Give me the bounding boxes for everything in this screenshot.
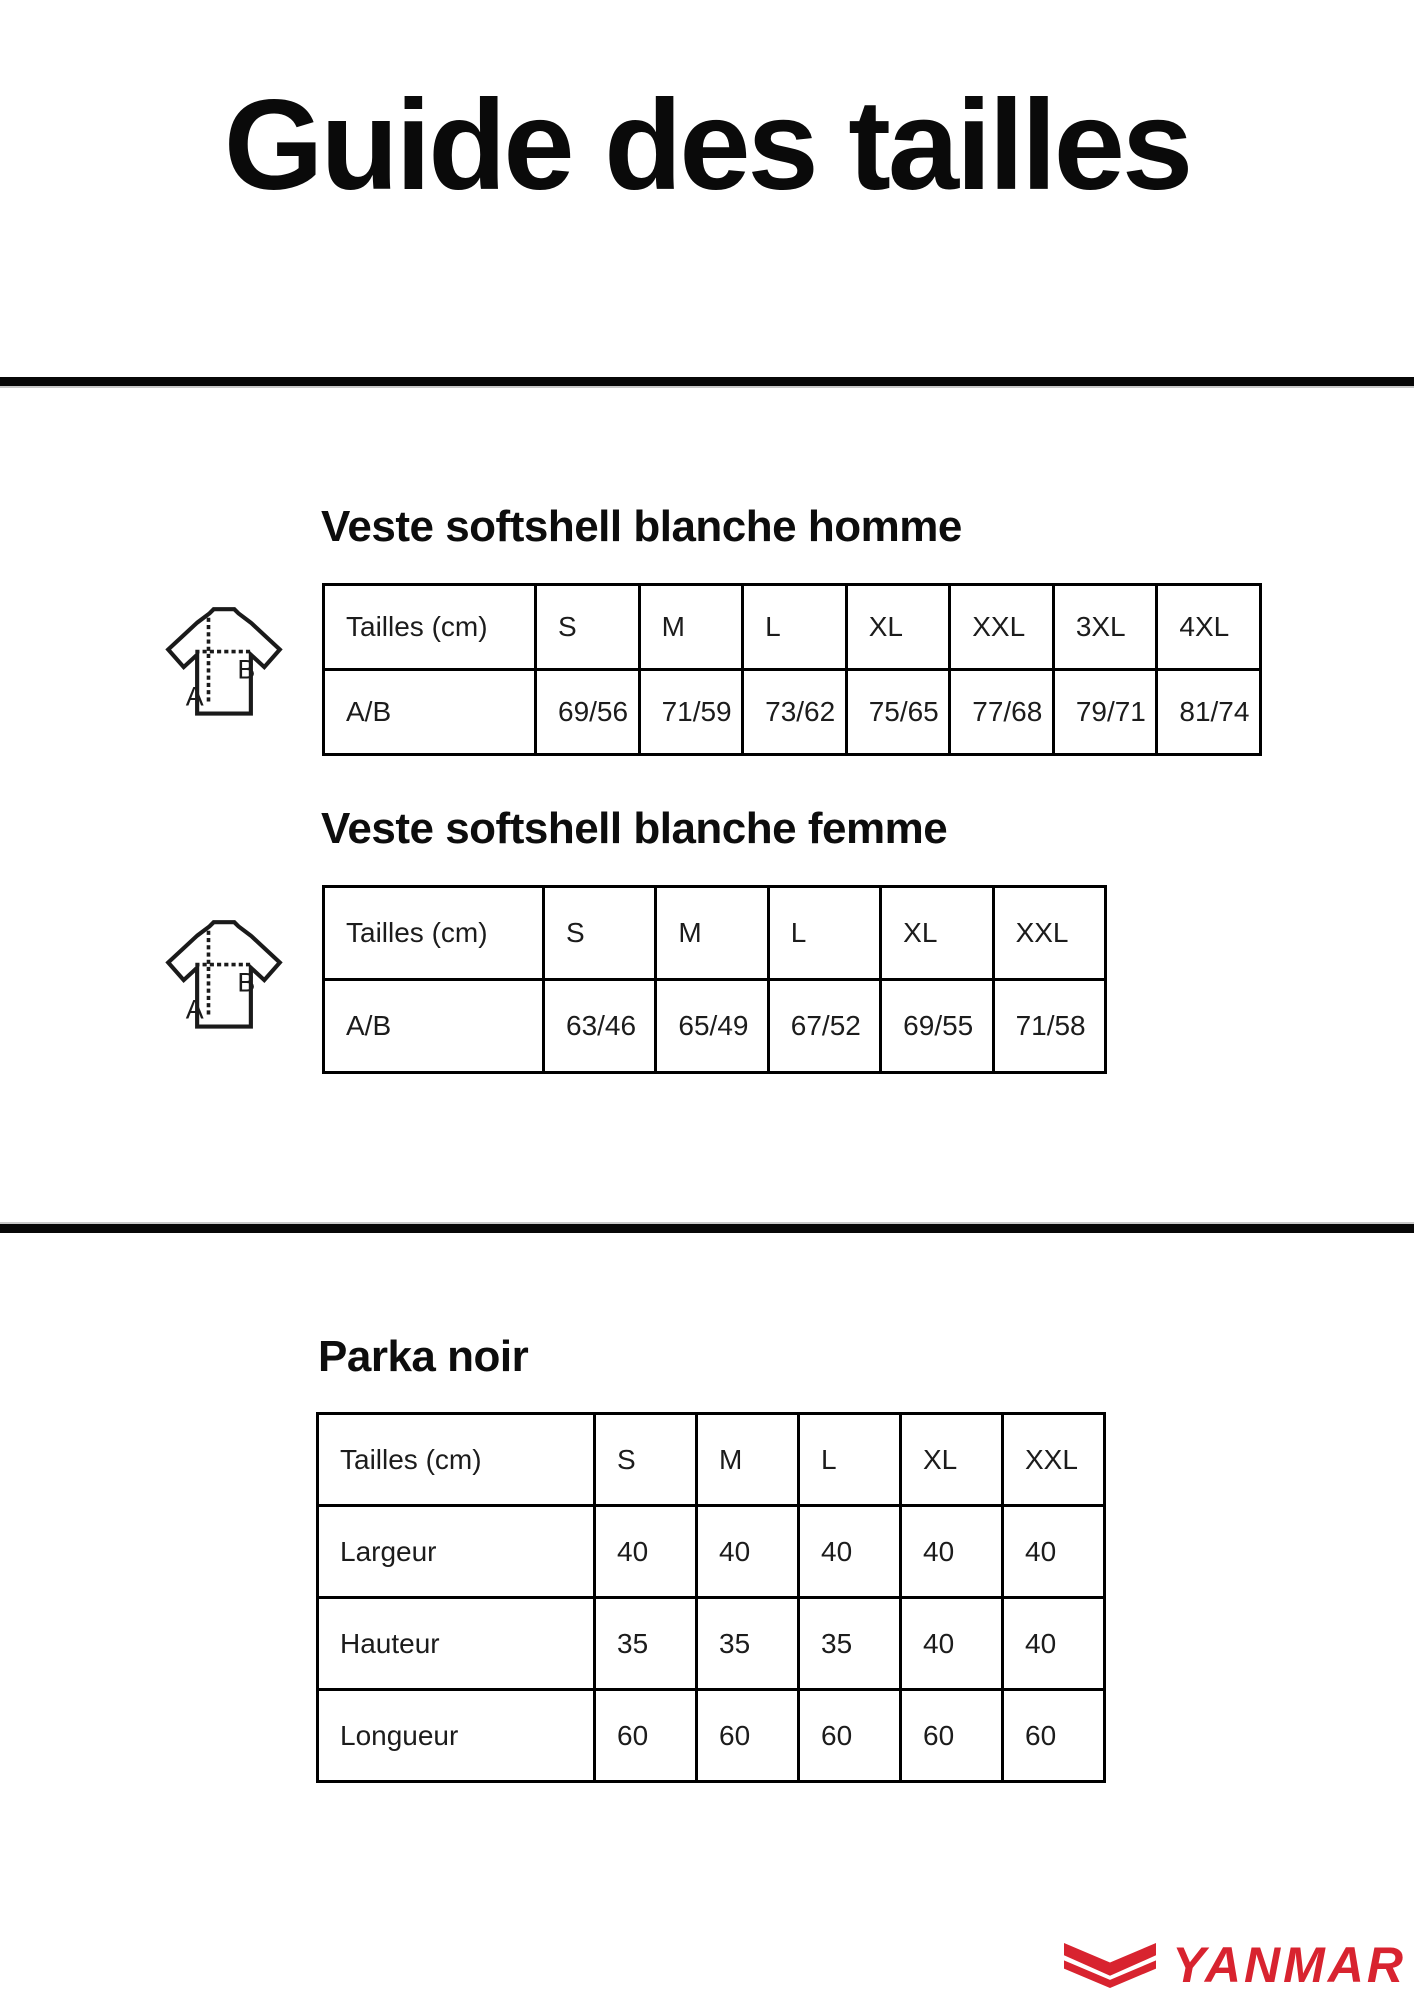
column-header-cell: S <box>544 887 656 980</box>
tshirt-measure-icon: A B <box>162 919 286 1040</box>
value-cell: 79/71 <box>1053 670 1157 755</box>
value-cell: A/B <box>324 980 544 1073</box>
table-row: A/B69/5671/5973/6275/6577/6879/7181/74 <box>324 670 1261 755</box>
width-label: B <box>237 967 255 997</box>
column-header-cell: Tailles (cm) <box>324 887 544 980</box>
column-header-cell: XL <box>846 585 950 670</box>
value-cell: Longueur <box>318 1690 595 1782</box>
table-row: Tailles (cm)SMLXLXXL <box>318 1414 1105 1506</box>
value-cell: 40 <box>1003 1598 1105 1690</box>
value-cell: A/B <box>324 670 536 755</box>
yanmar-wordmark: YANMAR <box>1172 1940 1406 1990</box>
value-cell: 60 <box>901 1690 1003 1782</box>
column-header-cell: L <box>743 585 847 670</box>
column-header-cell: M <box>639 585 743 670</box>
value-cell: 75/65 <box>846 670 950 755</box>
table-row: A/B63/4665/4967/5269/5571/58 <box>324 980 1106 1073</box>
column-header-cell: L <box>768 887 880 980</box>
column-header-cell: XXL <box>950 585 1054 670</box>
section-divider-top <box>0 377 1414 388</box>
column-header-cell: M <box>656 887 768 980</box>
yanmar-logo: YANMAR <box>1064 1940 1406 1990</box>
value-cell: 40 <box>901 1598 1003 1690</box>
column-header-cell: XXL <box>1003 1414 1105 1506</box>
value-cell: 73/62 <box>743 670 847 755</box>
column-header-cell: XXL <box>993 887 1105 980</box>
value-cell: 40 <box>799 1506 901 1598</box>
value-cell: 63/46 <box>544 980 656 1073</box>
column-header-cell: 3XL <box>1053 585 1157 670</box>
value-cell: 81/74 <box>1157 670 1261 755</box>
size-table-femme: Tailles (cm)SMLXLXXLA/B63/4665/4967/5269… <box>322 885 1107 1074</box>
value-cell: 60 <box>595 1690 697 1782</box>
size-table-parka: Tailles (cm)SMLXLXXLLargeur4040404040Hau… <box>316 1412 1106 1783</box>
column-header-cell: L <box>799 1414 901 1506</box>
value-cell: 60 <box>799 1690 901 1782</box>
yanmar-double-chevron-icon <box>1064 1942 1156 1988</box>
table-row: Largeur4040404040 <box>318 1506 1105 1598</box>
table-row: Tailles (cm)SMLXLXXL3XL4XL <box>324 585 1261 670</box>
value-cell: 40 <box>901 1506 1003 1598</box>
value-cell: 60 <box>1003 1690 1105 1782</box>
column-header-cell: S <box>595 1414 697 1506</box>
size-guide-page: Guide des tailles Veste softshell blanch… <box>0 0 1414 2000</box>
value-cell: 77/68 <box>950 670 1054 755</box>
value-cell: 35 <box>697 1598 799 1690</box>
width-label: B <box>237 654 255 684</box>
page-title: Guide des tailles <box>0 76 1414 217</box>
column-header-cell: Tailles (cm) <box>318 1414 595 1506</box>
section-heading-homme: Veste softshell blanche homme <box>321 502 962 552</box>
value-cell: Hauteur <box>318 1598 595 1690</box>
section-heading-parka: Parka noir <box>318 1332 528 1382</box>
table-row: Longueur6060606060 <box>318 1690 1105 1782</box>
size-table-homme: Tailles (cm)SMLXLXXL3XL4XLA/B69/5671/597… <box>322 583 1262 756</box>
section-divider-bottom <box>0 1222 1414 1233</box>
column-header-cell: M <box>697 1414 799 1506</box>
value-cell: 60 <box>697 1690 799 1782</box>
tshirt-measure-icon: A B <box>162 606 286 727</box>
value-cell: 35 <box>595 1598 697 1690</box>
table-row: Hauteur3535354040 <box>318 1598 1105 1690</box>
value-cell: 71/59 <box>639 670 743 755</box>
value-cell: Largeur <box>318 1506 595 1598</box>
column-header-cell: S <box>536 585 640 670</box>
value-cell: 40 <box>697 1506 799 1598</box>
value-cell: 65/49 <box>656 980 768 1073</box>
table-row: Tailles (cm)SMLXLXXL <box>324 887 1106 980</box>
value-cell: 35 <box>799 1598 901 1690</box>
section-heading-femme: Veste softshell blanche femme <box>321 804 947 854</box>
length-label: A <box>186 994 204 1024</box>
column-header-cell: 4XL <box>1157 585 1261 670</box>
value-cell: 71/58 <box>993 980 1105 1073</box>
value-cell: 67/52 <box>768 980 880 1073</box>
value-cell: 40 <box>1003 1506 1105 1598</box>
value-cell: 40 <box>595 1506 697 1598</box>
length-label: A <box>186 681 204 711</box>
value-cell: 69/56 <box>536 670 640 755</box>
value-cell: 69/55 <box>881 980 993 1073</box>
column-header-cell: Tailles (cm) <box>324 585 536 670</box>
column-header-cell: XL <box>881 887 993 980</box>
column-header-cell: XL <box>901 1414 1003 1506</box>
